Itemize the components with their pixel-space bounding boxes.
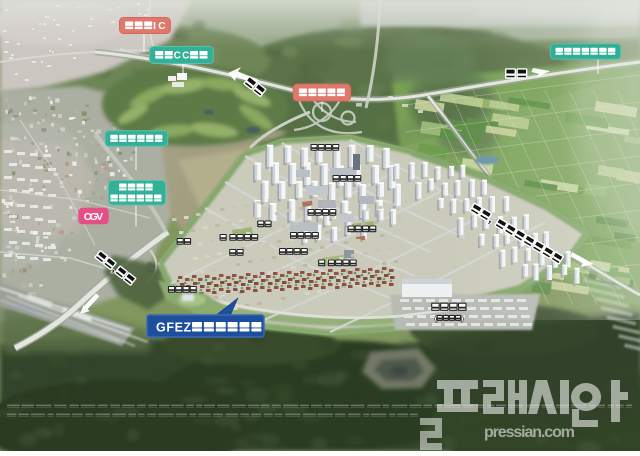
svg-text:CGV: CGV (84, 211, 104, 223)
svg-text:pressian.com: pressian.com (484, 424, 575, 441)
svg-text:CC: CC (174, 51, 190, 62)
svg-text:IC: IC (153, 21, 165, 32)
svg-text:GFEZ: GFEZ (156, 321, 192, 335)
svg-text:): ) (461, 315, 463, 322)
